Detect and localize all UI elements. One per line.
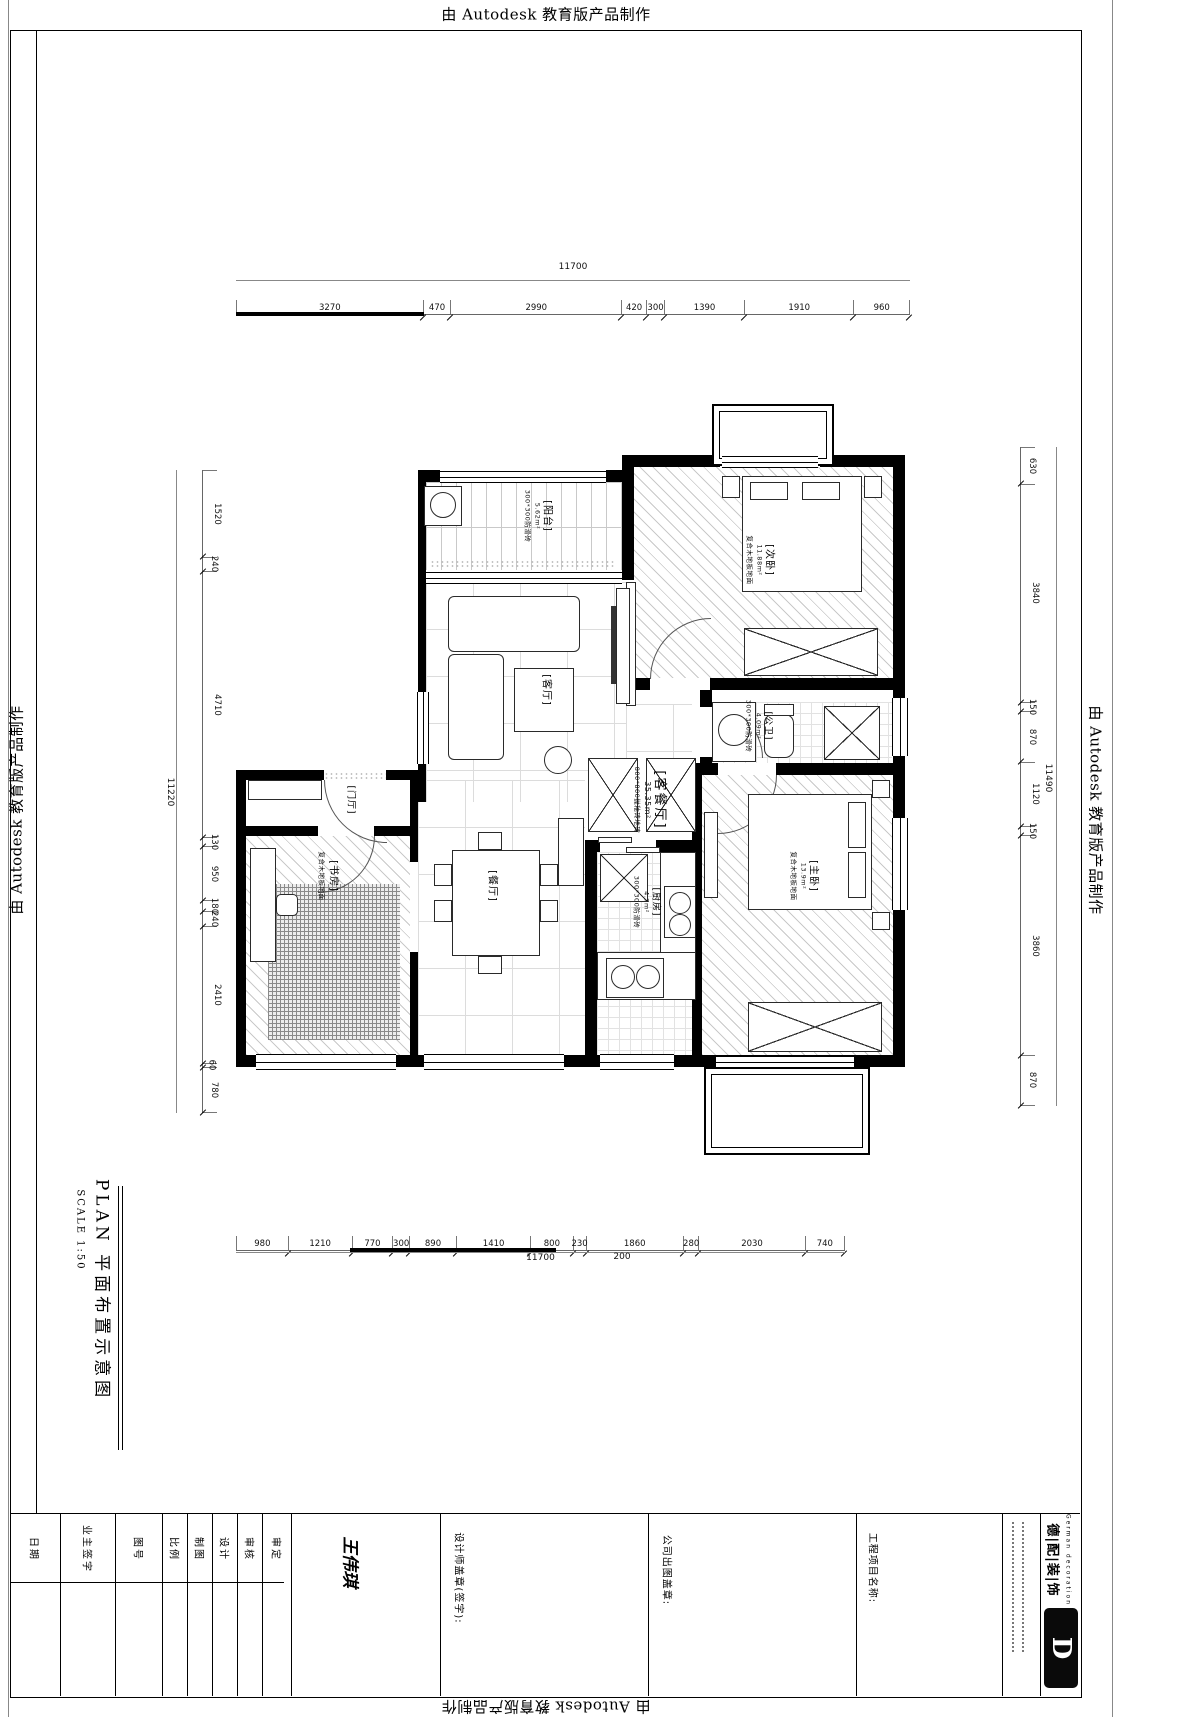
- bedroom2-wardrobe: [744, 628, 878, 676]
- sideboard: [558, 818, 584, 886]
- dim-segment: 1120: [1021, 763, 1035, 827]
- dim-segment: 2030: [699, 1236, 805, 1250]
- master-pillow-a: [848, 802, 866, 848]
- dim-segment: 150: [1021, 827, 1035, 836]
- titleblock-columns: 日期业主签字图号比例制图设计审核审定: [10, 1513, 284, 1696]
- chair-2: [434, 900, 452, 922]
- room-label-dining: [餐厅]: [487, 870, 502, 902]
- shoe-cabinet: [248, 780, 322, 800]
- fine-print-line-a: [1012, 1522, 1014, 1652]
- bedroom2-pillow-b: [802, 482, 840, 500]
- sheet-edge-right: [1112, 0, 1113, 1717]
- chair-6: [478, 956, 502, 974]
- dim-segment: 980: [236, 1236, 289, 1250]
- master-pillow-b: [848, 852, 866, 898]
- sofa-main: [448, 596, 580, 652]
- washing-machine-drum-icon: [430, 492, 456, 518]
- sheet-scale: SCALE 1:50: [75, 1189, 86, 1270]
- dim-left-total: 11220: [165, 778, 175, 807]
- dim-bottom-sublabel: 200: [598, 1252, 646, 1262]
- dim-segment: 870: [1021, 712, 1035, 762]
- bedroom2-bay-opening: [722, 456, 818, 468]
- designer-stamp-label: 设计师盖章(签字):: [453, 1532, 468, 1623]
- burner-a-icon: [669, 892, 691, 914]
- master-nightstand-b: [872, 912, 890, 930]
- dim-segment: 630: [1021, 447, 1035, 485]
- titleblock-column: 审定: [263, 1513, 292, 1696]
- room-label-kitchen: [厨房] 4.7m² 300*300防滑砖: [633, 876, 664, 929]
- titleblock-column: 审核: [238, 1513, 263, 1696]
- wall-kitchen-left: [585, 840, 597, 1067]
- dim-right-total: 11490: [1043, 764, 1053, 793]
- chair-5: [478, 832, 502, 850]
- sheet-title-underline: [118, 1186, 123, 1450]
- wall-study-right-b: [410, 952, 418, 1067]
- kitchen-sliding-door-a: [598, 837, 632, 843]
- dining-table: [452, 850, 540, 956]
- titleblock-column: 图号: [116, 1513, 163, 1696]
- corridor-floor: [626, 704, 692, 763]
- tb-line-4: [1002, 1513, 1003, 1696]
- dim-segment: 470: [424, 300, 452, 314]
- wall-study-top-b: [374, 826, 418, 836]
- wall-balcony-top-left: [418, 470, 440, 482]
- study-desk: [250, 848, 276, 962]
- wall-bedroom2-bottom-b: [710, 678, 905, 690]
- titleblock-column: 制图: [188, 1513, 213, 1696]
- dim-segment: 960: [854, 300, 910, 314]
- wall-study-top-a: [244, 826, 318, 836]
- dim-segment: 3860: [1021, 836, 1035, 1055]
- project-name-label: 工程项目名称:: [867, 1533, 882, 1603]
- brand-subtitle: German decoration: [1065, 1514, 1072, 1606]
- burner-b-icon: [669, 914, 691, 936]
- master-bay-window: [704, 1067, 870, 1155]
- hallway-cabinet-a: [588, 758, 638, 832]
- dim-segment: 2990: [451, 300, 622, 314]
- dim-segment: 420: [622, 300, 647, 314]
- wall-master-top-a: [700, 763, 718, 775]
- wall-right-exterior: [893, 455, 905, 1067]
- wall-kitchen-top-b: [656, 840, 700, 852]
- bath-window: [892, 698, 908, 756]
- titleblock-column: 日期: [10, 1513, 61, 1696]
- dim-segment: 240: [203, 912, 217, 927]
- bedroom2-pillow-a: [750, 482, 788, 500]
- wall-foyer-top-b: [386, 770, 418, 780]
- balcony-threshold-speckle: [430, 560, 616, 569]
- dim-segment: 230: [574, 1236, 587, 1250]
- owner-signature: 王伟琪: [340, 1537, 365, 1588]
- wall-study-right-a: [410, 770, 418, 862]
- watermark-bottom: 由 Autodesk 教育版产品制作: [441, 1697, 650, 1717]
- plant-icon: [544, 746, 572, 774]
- tv-icon: [611, 606, 616, 684]
- dim-top-thickbar: [236, 312, 424, 316]
- tb-line-1: [440, 1513, 441, 1696]
- fine-print-line-b: [1022, 1522, 1024, 1652]
- bath-shower: [824, 706, 880, 760]
- titleblock-column: 设计: [213, 1513, 238, 1696]
- dim-segment: 240: [203, 558, 217, 573]
- dim-segment: 950: [203, 847, 217, 902]
- master-wardrobe: [748, 1002, 882, 1052]
- dim-segment: 3840: [1021, 485, 1035, 703]
- brand-name: 德|配|装|饰: [1045, 1523, 1064, 1596]
- wall-foyer-top-a: [236, 770, 324, 780]
- dim-segment: 300: [647, 300, 665, 314]
- study-bottom-window: [256, 1054, 396, 1070]
- room-label-study: [书房] 复合木地板地面: [318, 852, 343, 901]
- sofa-side: [448, 654, 504, 760]
- dim-segment: 740: [806, 1236, 845, 1250]
- company-stamp-label: 公司出图盖章:: [661, 1535, 676, 1605]
- dining-bottom-window: [424, 1054, 564, 1070]
- dim-segment: 1860: [587, 1236, 684, 1250]
- bedroom2-nightstand-b: [864, 476, 882, 498]
- dim-right-chain: 630384015087011201503860870: [1020, 447, 1035, 1106]
- dim-left-chain: 15202404710130950180240241060780: [202, 470, 217, 1113]
- room-label-living-dining: [客餐厅] 35.35m² 800*800抛釉砖地砖: [633, 767, 671, 834]
- sink-bowl-a-icon: [611, 965, 635, 989]
- tb-line-3: [856, 1513, 857, 1696]
- wall-balcony-right: [622, 455, 634, 580]
- dim-segment: 1910: [745, 300, 854, 314]
- living-left-window: [417, 692, 429, 764]
- dim-segment: 1520: [203, 470, 217, 558]
- balcony-sliding-window: [426, 572, 622, 584]
- kitchen-sliding-door-b: [626, 847, 660, 853]
- watermark-right: 由 Autodesk 教育版产品制作: [1086, 705, 1107, 914]
- room-label-bath: [公卫] 4.09m² 300*300防滑砖: [745, 700, 776, 753]
- titleblock-divider: [10, 1582, 284, 1583]
- wall-master-top-b: [776, 763, 905, 775]
- room-label-foyer: [门厅]: [346, 785, 359, 814]
- wall-left-exterior-lower: [236, 770, 246, 1067]
- dim-segment: 130: [203, 838, 217, 846]
- master-window: [892, 818, 908, 910]
- frame-margin-line: [36, 30, 37, 1513]
- room-label-living: [客厅]: [541, 674, 556, 706]
- room-label-bedroom2: [次卧] 11.88m² 复合木地板地面: [746, 536, 779, 585]
- titleblock-column: 比例: [163, 1513, 188, 1696]
- dim-segment: 150: [1021, 703, 1035, 712]
- balcony-top-window: [440, 471, 606, 483]
- wall-bedroom2-top-left: [622, 455, 720, 467]
- kitchen-bottom-window: [600, 1054, 674, 1070]
- master-dresser: [704, 812, 718, 898]
- tb-line-2: [648, 1513, 649, 1696]
- wall-bath-left-a: [700, 690, 712, 707]
- tb-line-5: [1040, 1513, 1041, 1696]
- room-label-balcony: [阳台] 5.62m² 300*300防滑砖: [524, 490, 557, 543]
- room-label-master: [主卧] 13.9m² 复合木地板地面: [790, 852, 823, 901]
- dim-top-total: 11700: [236, 262, 910, 281]
- titleblock-column: 业主签字: [61, 1513, 116, 1696]
- watermark-top: 由 Autodesk 教育版产品制作: [441, 4, 650, 25]
- dim-segment: 780: [203, 1068, 217, 1113]
- sheet-title: PLAN 平面布置示意图: [92, 1179, 117, 1401]
- study-chair: [276, 894, 298, 916]
- drawing-sheet: 由 Autodesk 教育版产品制作 由 Autodesk 教育版产品制作 由 …: [0, 0, 1200, 1717]
- bedroom2-nightstand-a: [722, 476, 740, 498]
- master-nightstand-a: [872, 780, 890, 798]
- dim-segment: 1210: [289, 1236, 353, 1250]
- tv-cabinet: [616, 588, 630, 704]
- dim-segment: 4710: [203, 572, 217, 838]
- dim-left-total-line: [176, 470, 177, 1113]
- dim-segment: 870: [1021, 1056, 1035, 1106]
- dim-segment: 280: [684, 1236, 700, 1250]
- chair-1: [434, 864, 452, 886]
- dim-right-total-line: [1056, 447, 1057, 1106]
- dim-bottom-total: 11700: [236, 1252, 845, 1269]
- chair-4: [540, 900, 558, 922]
- dim-segment: 1390: [665, 300, 745, 314]
- sink-bowl-b-icon: [636, 965, 660, 989]
- brand-logo-letter: D: [1046, 1637, 1076, 1660]
- chair-3: [540, 864, 558, 886]
- entry-threshold-speckle: [324, 772, 386, 780]
- brand-logo: D: [1044, 1608, 1078, 1688]
- watermark-left: 由 Autodesk 教育版产品制作: [6, 705, 27, 914]
- dim-segment: 2410: [203, 927, 217, 1064]
